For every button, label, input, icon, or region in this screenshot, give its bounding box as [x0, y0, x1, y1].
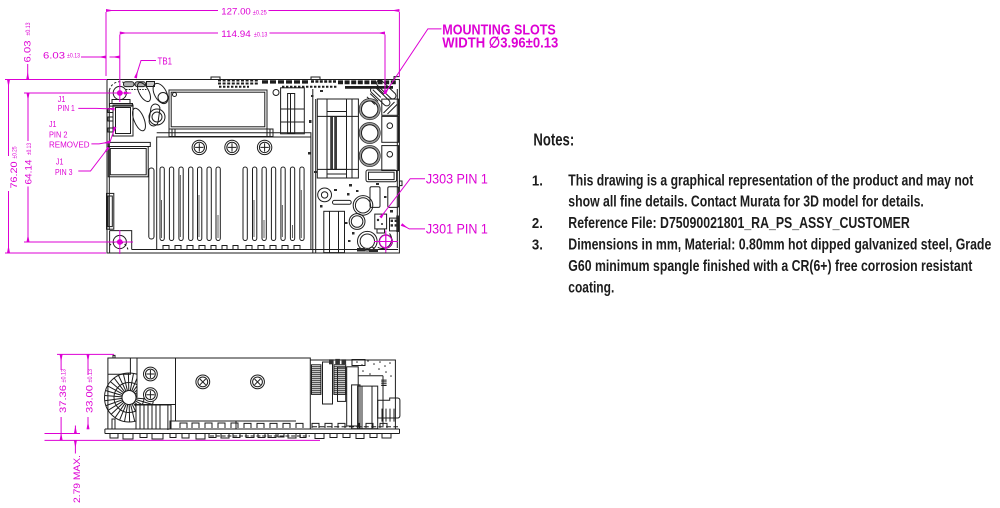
svg-text:J1: J1: [49, 120, 57, 129]
svg-text:PIN 2: PIN 2: [49, 130, 68, 139]
svg-text:1.: 1.: [532, 173, 543, 189]
svg-text:6.03: 6.03: [43, 50, 65, 60]
svg-text:127.00: 127.00: [221, 7, 251, 17]
svg-text:REMOVED: REMOVED: [49, 141, 90, 150]
svg-text:PIN 3: PIN 3: [55, 168, 73, 177]
svg-text:33.00: 33.00: [85, 385, 95, 413]
svg-text:J1: J1: [56, 157, 64, 166]
svg-text:2.: 2.: [532, 216, 543, 232]
svg-text:±0.13: ±0.13: [88, 368, 94, 382]
svg-text:This drawing is a graphical re: This drawing is a graphical representati…: [568, 172, 974, 189]
svg-text:±0.25: ±0.25: [13, 146, 19, 159]
svg-text:WIDTH ∅3.96±0.13: WIDTH ∅3.96±0.13: [442, 34, 558, 51]
svg-text:±0.13: ±0.13: [254, 32, 268, 38]
svg-text:G60 minimum spangle finished w: G60 minimum spangle finished with a CR(6…: [568, 258, 973, 275]
svg-text:J1: J1: [58, 95, 66, 104]
svg-text:coating.: coating.: [568, 279, 614, 296]
svg-text:±0.13: ±0.13: [26, 22, 32, 36]
svg-text:64.14: 64.14: [23, 160, 33, 185]
svg-text:3.: 3.: [532, 238, 543, 254]
svg-text:Reference File: D75090021801_R: Reference File: D75090021801_RA_PS_ASSY_…: [568, 215, 910, 232]
svg-text:PIN 1: PIN 1: [58, 104, 75, 113]
svg-text:show all fine details. Contact: show all fine details. Contact Murata fo…: [568, 194, 924, 211]
svg-text:114.94: 114.94: [221, 29, 251, 39]
svg-text:2.79 MAX.: 2.79 MAX.: [72, 455, 82, 503]
svg-text:37.36: 37.36: [58, 385, 68, 413]
svg-text:J301 PIN 1: J301 PIN 1: [426, 222, 488, 237]
svg-text:76.20: 76.20: [9, 162, 19, 189]
svg-text:±0.13: ±0.13: [27, 142, 33, 155]
svg-text:Dimensions in mm, Material: 0.: Dimensions in mm, Material: 0.80mm hot d…: [568, 237, 991, 254]
svg-text:TB1: TB1: [158, 57, 173, 68]
svg-text:J303 PIN 1: J303 PIN 1: [426, 171, 488, 186]
svg-text:Notes:: Notes:: [533, 129, 574, 149]
svg-text:6.03: 6.03: [23, 41, 33, 63]
svg-text:±0.13: ±0.13: [67, 54, 81, 60]
svg-text:±0.25: ±0.25: [253, 10, 268, 16]
svg-text:±0.13: ±0.13: [62, 368, 68, 382]
